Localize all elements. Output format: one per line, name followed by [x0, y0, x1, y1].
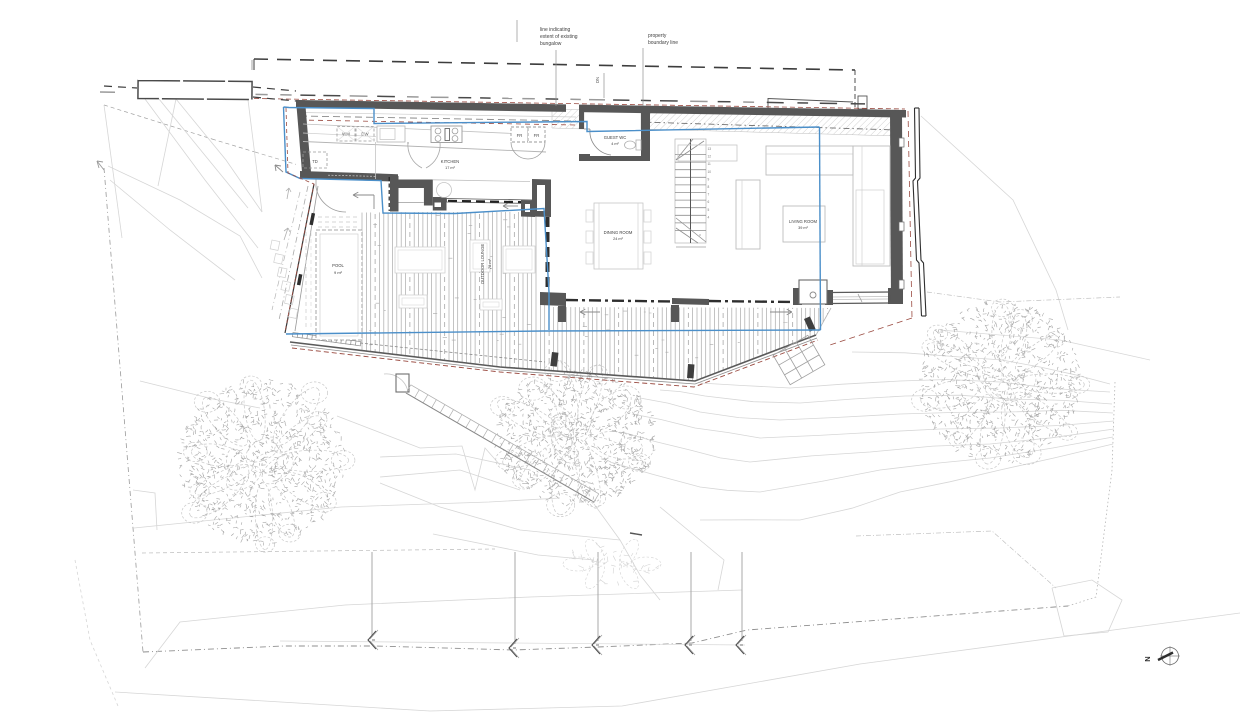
- svg-text:9: 9: [708, 177, 710, 181]
- svg-text:TD: TD: [312, 159, 318, 164]
- svg-text:bungalow: bungalow: [540, 41, 562, 47]
- svg-text:boundary line: boundary line: [648, 40, 678, 46]
- svg-text:FR: FR: [534, 133, 540, 138]
- svg-text:OUTDOOR LOUNGE: OUTDOOR LOUNGE: [480, 244, 485, 284]
- svg-text:4: 4: [708, 215, 710, 219]
- svg-text:17 m²: 17 m²: [445, 166, 455, 170]
- svg-text:5: 5: [708, 208, 710, 212]
- svg-text:11: 11: [708, 162, 712, 166]
- svg-text:13: 13: [708, 147, 712, 151]
- svg-text:12: 12: [708, 155, 712, 159]
- svg-text:8: 8: [708, 185, 710, 189]
- svg-text:78 m²: 78 m²: [487, 258, 492, 269]
- svg-text:KITCHEN: KITCHEN: [441, 159, 459, 164]
- svg-text:GUEST WC: GUEST WC: [604, 135, 627, 140]
- svg-text:7: 7: [708, 193, 710, 197]
- svg-text:24 m²: 24 m²: [613, 237, 623, 241]
- svg-text:9 m²: 9 m²: [334, 270, 343, 275]
- svg-text:10: 10: [708, 170, 712, 174]
- svg-text:DN: DN: [595, 77, 600, 83]
- svg-text:FR: FR: [517, 133, 523, 138]
- svg-text:DINING ROOM: DINING ROOM: [604, 230, 633, 235]
- svg-text:6: 6: [708, 200, 710, 204]
- svg-text:4 m²: 4 m²: [611, 142, 619, 146]
- svg-text:extent of existing: extent of existing: [540, 34, 578, 40]
- svg-text:N: N: [1143, 656, 1152, 661]
- svg-text:POOL: POOL: [332, 263, 344, 268]
- svg-text:LIVING ROOM: LIVING ROOM: [789, 219, 817, 224]
- svg-text:property: property: [648, 33, 667, 39]
- svg-text:39 m²: 39 m²: [798, 226, 808, 230]
- svg-text:line indicating: line indicating: [540, 27, 571, 33]
